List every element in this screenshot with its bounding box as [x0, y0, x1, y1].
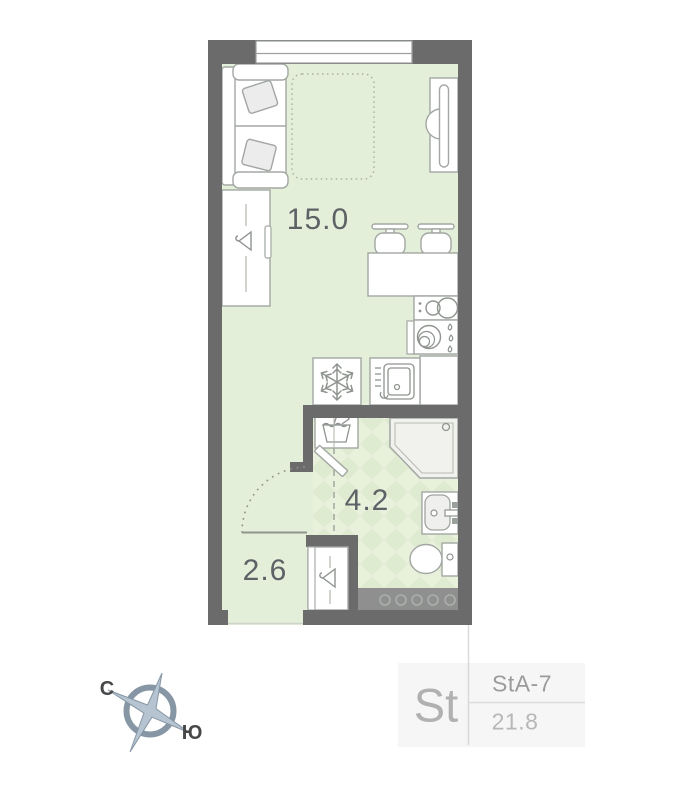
compass-rose-icon — [108, 673, 190, 752]
window — [256, 41, 412, 63]
living-room-area-label: 15.0 — [287, 205, 349, 235]
unit-total-area: 21.8 — [492, 711, 539, 734]
kitchen-sink-icon — [407, 320, 458, 354]
bathroom-area-label: 4.2 — [345, 486, 390, 516]
tv-panel — [426, 78, 458, 172]
floorplan-page: 15.0 4.2 2.6 С Ю St StA-7 21.8 — [0, 0, 683, 800]
bar-stool — [418, 224, 454, 255]
hall-closet — [308, 547, 348, 610]
vent-shaft — [358, 588, 458, 610]
compass-south-label: Ю — [182, 723, 203, 743]
cooktop-icon — [414, 296, 458, 320]
bar-stool — [372, 224, 408, 255]
bathroom-sink — [422, 492, 458, 534]
kitchen-table — [368, 253, 458, 296]
wardrobe-handle — [265, 226, 271, 258]
fridge — [313, 358, 361, 405]
dishwasher-icon — [370, 358, 420, 405]
toilet — [410, 543, 458, 576]
wardrobe — [222, 190, 271, 306]
compass-north-label: С — [100, 679, 114, 699]
sofa — [222, 64, 288, 188]
unit-layout-code: StA-7 — [492, 673, 552, 696]
kitchen-counter — [420, 356, 458, 405]
unit-type-label: St — [414, 682, 458, 729]
hallway-area-label: 2.6 — [243, 556, 288, 586]
